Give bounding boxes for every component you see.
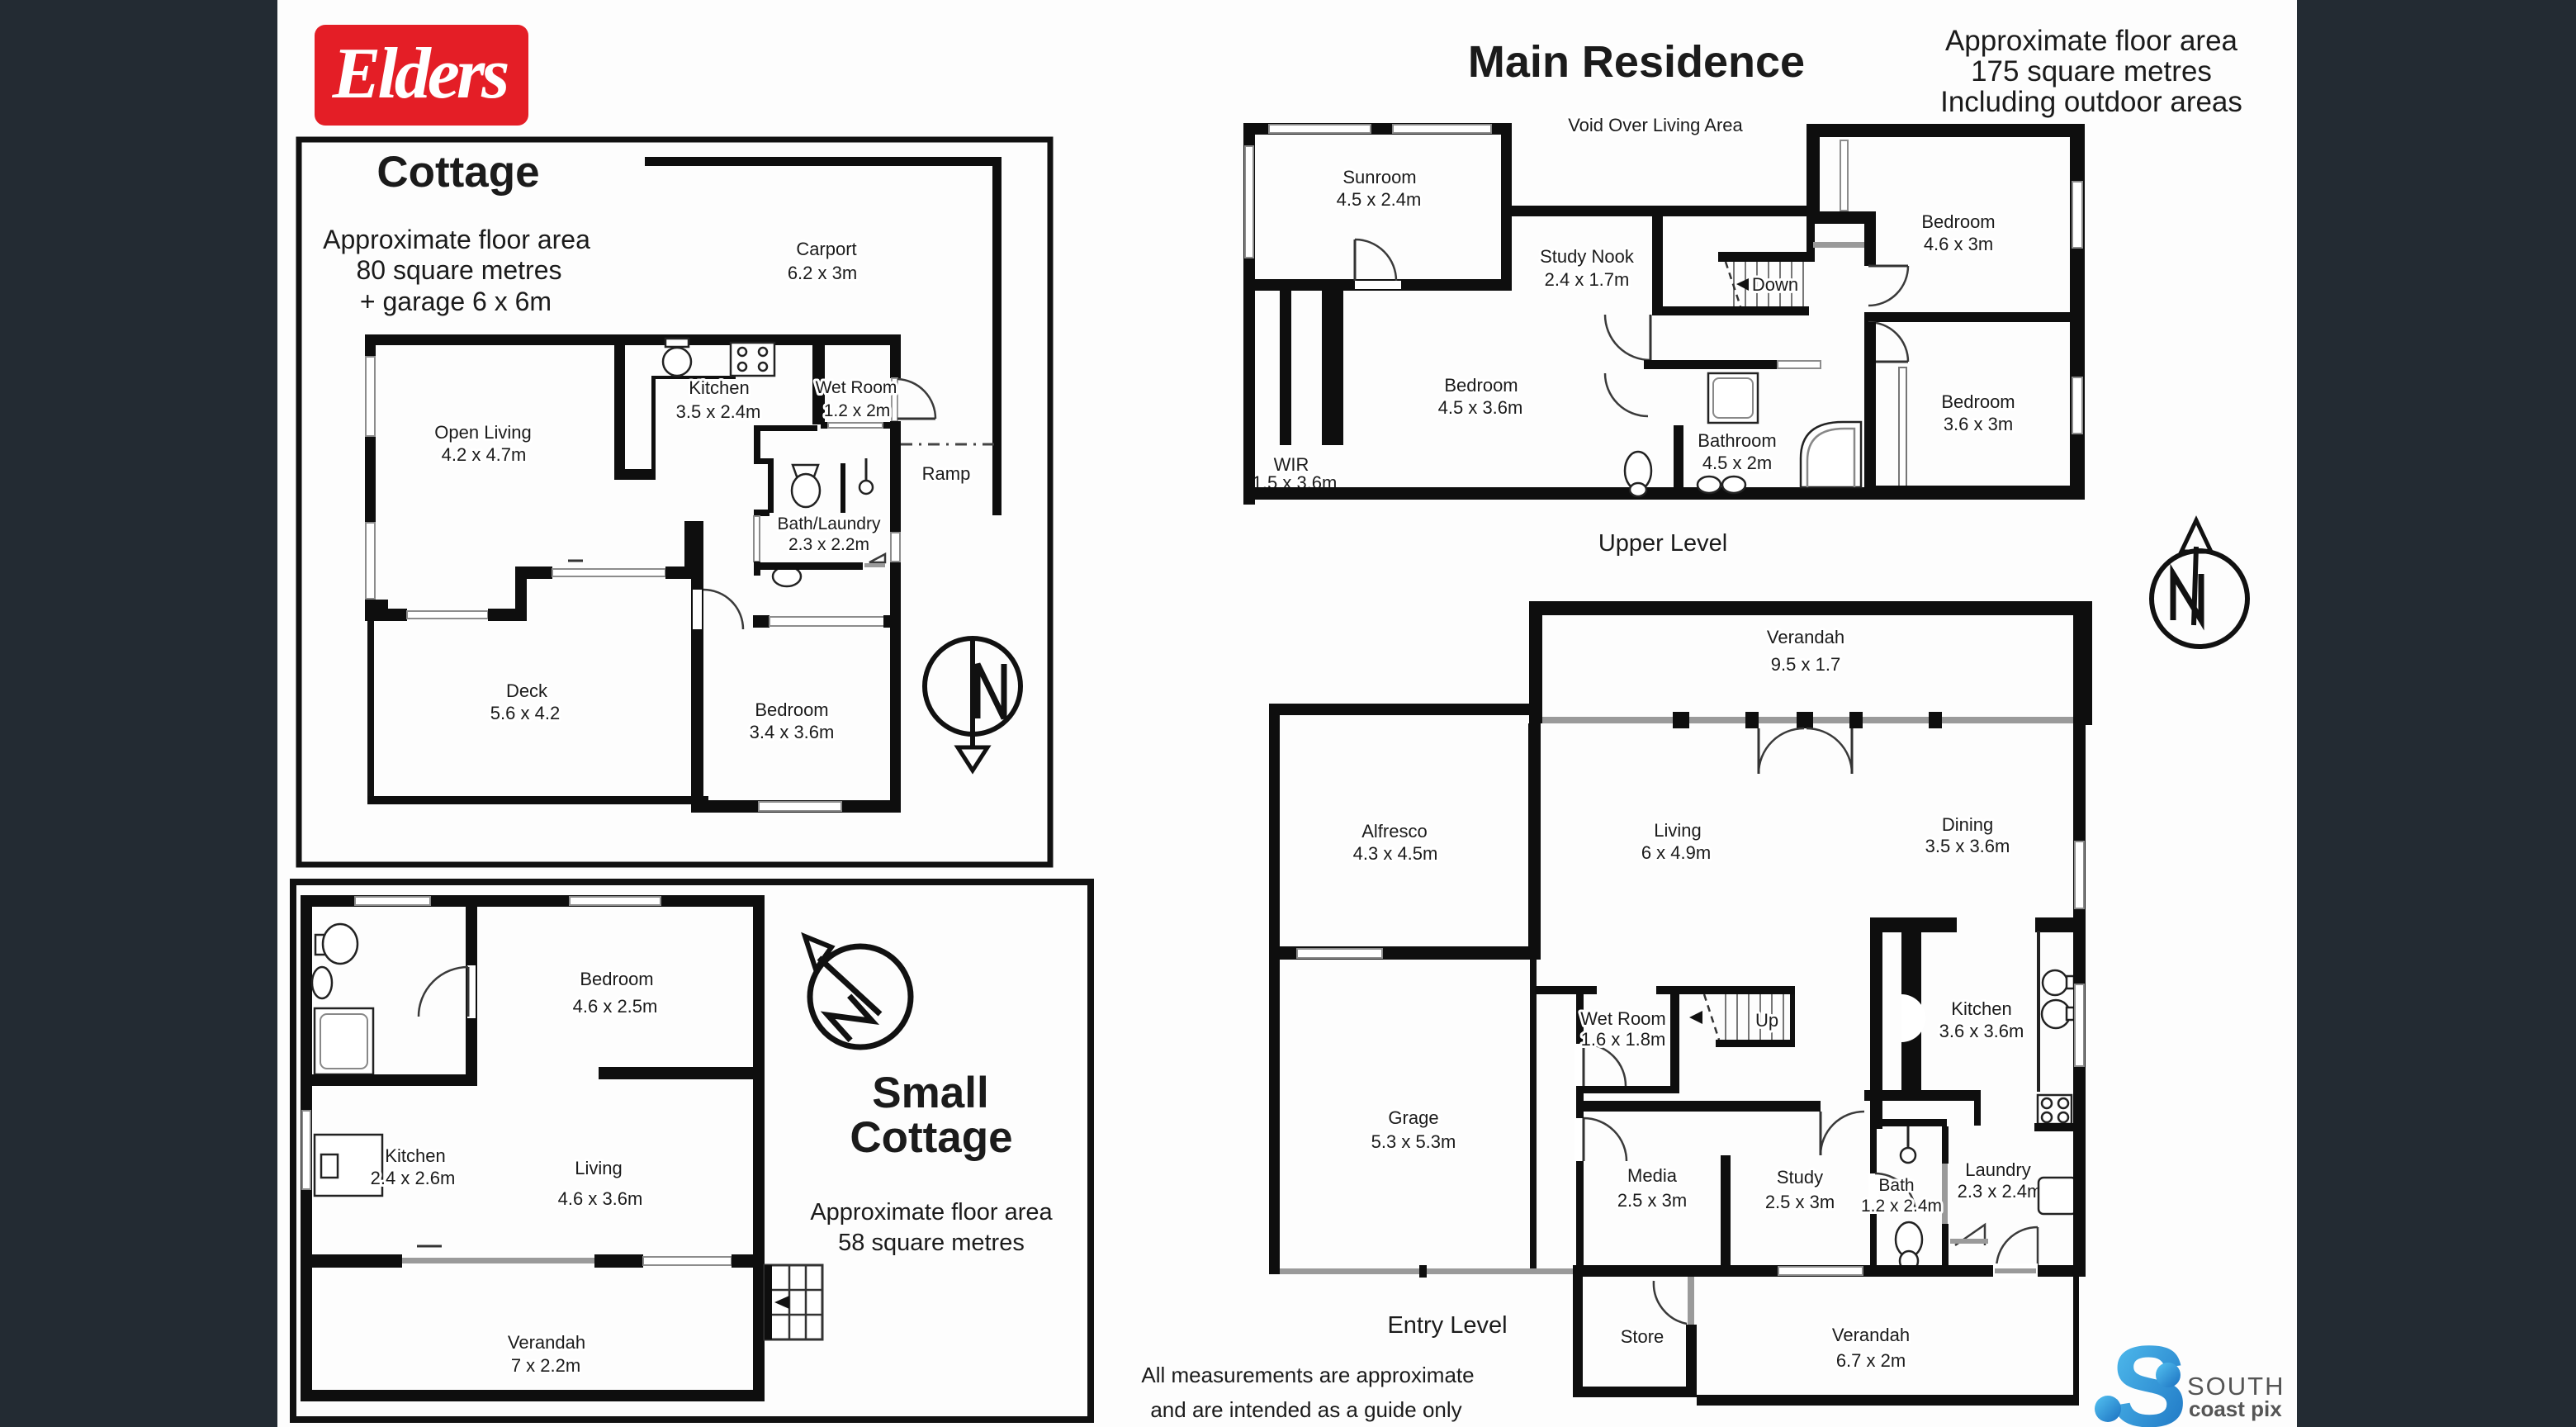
- svg-text:Deck: Deck: [506, 680, 548, 701]
- svg-text:1.6 x 1.8m: 1.6 x 1.8m: [1581, 1029, 1666, 1050]
- svg-text:Store: Store: [1621, 1326, 1664, 1347]
- svg-text:Kitchen: Kitchen: [689, 377, 749, 398]
- svg-text:+ garage 6 x 6m: + garage 6 x 6m: [360, 287, 552, 316]
- svg-text:58 square metres: 58 square metres: [838, 1230, 1025, 1256]
- svg-text:Approximate floor area: Approximate floor area: [323, 225, 590, 254]
- svg-text:Upper Level: Upper Level: [1598, 530, 1727, 557]
- svg-text:2.3 x 2.4m: 2.3 x 2.4m: [1958, 1181, 2043, 1202]
- svg-text:6.7 x 2m: 6.7 x 2m: [1836, 1350, 1906, 1371]
- svg-text:Verandah: Verandah: [1767, 627, 1844, 647]
- svg-text:Carport: Carport: [796, 239, 856, 259]
- svg-text:2.5 x 3m: 2.5 x 3m: [1765, 1192, 1835, 1212]
- svg-text:Ramp: Ramp: [922, 463, 971, 484]
- svg-text:4.6 x 2.5m: 4.6 x 2.5m: [573, 996, 658, 1017]
- svg-text:All measurements are approxima: All measurements are approximate: [1141, 1363, 1474, 1387]
- svg-text:Wet Room: Wet Room: [816, 378, 897, 397]
- svg-text:Cottage: Cottage: [376, 148, 539, 197]
- svg-text:9.5 x 1.7: 9.5 x 1.7: [1771, 654, 1840, 675]
- svg-text:Bath: Bath: [1878, 1176, 1914, 1195]
- svg-text:Media: Media: [1627, 1165, 1678, 1186]
- svg-text:Dining: Dining: [1942, 814, 1993, 835]
- svg-text:1.2 x 2.4m: 1.2 x 2.4m: [1861, 1197, 1942, 1216]
- svg-text:4.2 x 4.7m: 4.2 x 4.7m: [442, 444, 527, 465]
- svg-text:4.5 x 2m: 4.5 x 2m: [1702, 453, 1772, 473]
- svg-text:7 x 2.2m: 7 x 2.2m: [511, 1355, 580, 1376]
- svg-text:Bedroom: Bedroom: [1444, 375, 1518, 396]
- svg-text:Elders: Elders: [332, 34, 508, 114]
- svg-text:coast pix: coast pix: [2189, 1396, 2282, 1421]
- svg-text:3.5 x 2.4m: 3.5 x 2.4m: [676, 401, 761, 422]
- svg-text:4.5 x 2.4m: 4.5 x 2.4m: [1337, 189, 1422, 210]
- svg-text:4.3 x 4.5m: 4.3 x 4.5m: [1353, 843, 1438, 864]
- svg-text:Entry Level: Entry Level: [1387, 1312, 1507, 1339]
- svg-text:Approximate floor area: Approximate floor area: [810, 1199, 1053, 1226]
- svg-text:Open Living: Open Living: [434, 422, 531, 443]
- svg-text:5.6 x 4.2: 5.6 x 4.2: [490, 703, 560, 723]
- svg-text:Living: Living: [1654, 820, 1701, 841]
- svg-text:2.4 x 2.6m: 2.4 x 2.6m: [371, 1168, 456, 1188]
- svg-text:and are intended as a guide on: and are intended as a guide only: [1150, 1397, 1461, 1422]
- svg-text:Living: Living: [575, 1158, 622, 1178]
- svg-text:Kitchen: Kitchen: [385, 1145, 445, 1166]
- svg-text:Bath/Laundry: Bath/Laundry: [778, 514, 881, 533]
- svg-text:4.6 x 3m: 4.6 x 3m: [1924, 234, 1993, 254]
- svg-text:Bedroom: Bedroom: [1921, 211, 1995, 232]
- svg-text:Wet Room: Wet Room: [1580, 1008, 1666, 1029]
- svg-text:Laundry: Laundry: [1965, 1159, 2031, 1180]
- svg-text:Sunroom: Sunroom: [1342, 167, 1416, 187]
- svg-text:175 square metres: 175 square metres: [1971, 55, 2212, 88]
- svg-text:Kitchen: Kitchen: [1951, 998, 2011, 1019]
- svg-text:5.3 x 5.3m: 5.3 x 5.3m: [1371, 1131, 1456, 1152]
- svg-text:Up: Up: [1755, 1010, 1778, 1031]
- svg-text:Bathroom: Bathroom: [1698, 430, 1776, 451]
- svg-text:3.6 x 3.6m: 3.6 x 3.6m: [1939, 1021, 2024, 1041]
- svg-text:1.2 x 2m: 1.2 x 2m: [824, 401, 891, 420]
- svg-text:Bedroom: Bedroom: [1941, 391, 2015, 412]
- svg-text:Cottage: Cottage: [850, 1113, 1012, 1162]
- svg-text:Study: Study: [1777, 1167, 1823, 1188]
- svg-text:4.6 x 3.6m: 4.6 x 3.6m: [558, 1188, 643, 1209]
- svg-text:Approximate floor area: Approximate floor area: [1945, 25, 2238, 57]
- svg-text:Bedroom: Bedroom: [755, 699, 828, 720]
- svg-text:2.5 x 3m: 2.5 x 3m: [1617, 1190, 1687, 1211]
- svg-text:Verandah: Verandah: [508, 1332, 585, 1353]
- svg-text:2.3 x 2.2m: 2.3 x 2.2m: [788, 535, 869, 554]
- svg-text:4.5 x 3.6m: 4.5 x 3.6m: [1438, 397, 1523, 418]
- svg-text:Void Over Living Area: Void Over Living Area: [1568, 115, 1743, 135]
- svg-text:Small: Small: [872, 1069, 988, 1117]
- svg-text:3.6 x 3m: 3.6 x 3m: [1944, 414, 2013, 434]
- svg-text:6.2 x 3m: 6.2 x 3m: [788, 263, 857, 283]
- svg-text:Verandah: Verandah: [1832, 1325, 1910, 1345]
- svg-text:Bedroom: Bedroom: [580, 969, 653, 989]
- svg-text:2.4 x 1.7m: 2.4 x 1.7m: [1545, 269, 1630, 290]
- svg-text:3.4 x 3.6m: 3.4 x 3.6m: [750, 722, 835, 742]
- svg-text:3.5 x 3.6m: 3.5 x 3.6m: [1925, 836, 2010, 856]
- svg-text:Grage: Grage: [1388, 1107, 1438, 1128]
- svg-text:Study Nook: Study Nook: [1540, 246, 1635, 267]
- svg-text:Alfresco: Alfresco: [1361, 821, 1427, 842]
- svg-text:80 square metres: 80 square metres: [356, 255, 561, 285]
- svg-text:Including outdoor areas: Including outdoor areas: [1940, 86, 2242, 118]
- svg-text:Main Residence: Main Residence: [1468, 37, 1805, 87]
- svg-text:6 x 4.9m: 6 x 4.9m: [1641, 842, 1711, 863]
- svg-text:Down: Down: [1752, 274, 1798, 295]
